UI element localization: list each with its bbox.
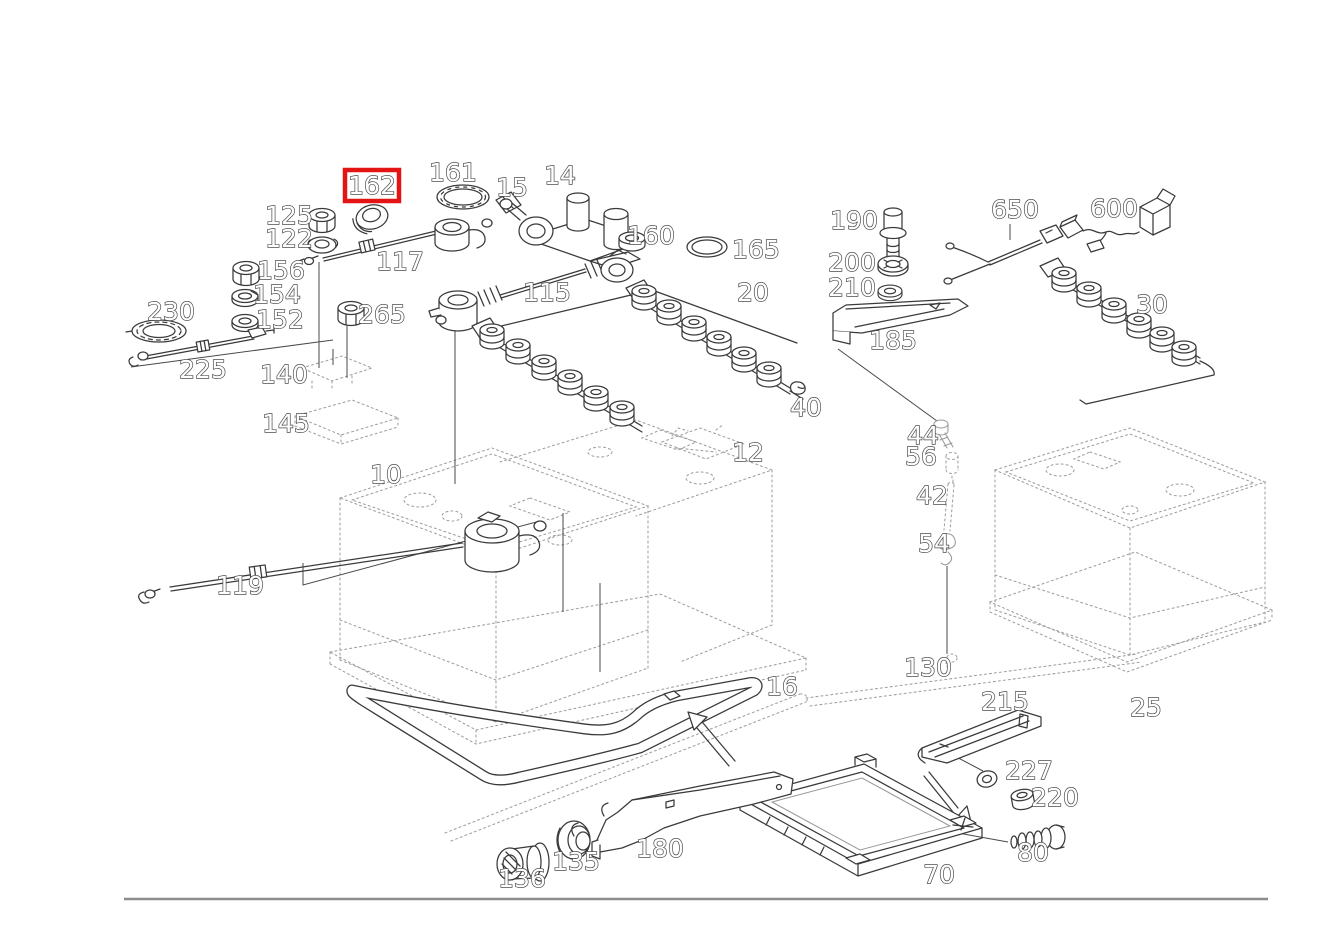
- part-label-165[interactable]: 165: [732, 235, 780, 264]
- part-label-15[interactable]: 15: [496, 173, 528, 202]
- part-label-162[interactable]: 162: [348, 171, 396, 200]
- part-label-14[interactable]: 14: [544, 161, 576, 190]
- part-label-225[interactable]: 225: [179, 355, 227, 384]
- part-label-185[interactable]: 185: [869, 326, 917, 355]
- part-30-vent-cap-strip: [1040, 258, 1214, 404]
- part-label-265[interactable]: 265: [358, 300, 406, 329]
- part-label-140[interactable]: 140: [260, 360, 308, 389]
- part-label-119[interactable]: 119: [216, 571, 264, 600]
- part-162-terminal-boot: [350, 201, 391, 236]
- part-190-bolt: [880, 208, 906, 263]
- part-label-25[interactable]: 25: [1130, 693, 1162, 722]
- part-label-16[interactable]: 16: [766, 672, 798, 701]
- part-label-30[interactable]: 30: [1136, 290, 1168, 319]
- part-label-215[interactable]: 215: [981, 687, 1029, 716]
- part-label-152[interactable]: 152: [256, 305, 304, 334]
- part-165-seal-ring: [687, 237, 727, 257]
- part-label-20[interactable]: 20: [737, 278, 769, 307]
- part-label-56[interactable]: 56: [905, 442, 937, 471]
- part-label-230[interactable]: 230: [147, 297, 195, 326]
- part-125-hex-nut: [309, 209, 335, 233]
- part-label-190[interactable]: 190: [830, 206, 878, 235]
- part-label-227[interactable]: 227: [1005, 756, 1053, 785]
- part-label-42[interactable]: 42: [916, 481, 948, 510]
- part-label-160[interactable]: 160: [627, 221, 675, 250]
- part-label-180[interactable]: 180: [636, 834, 684, 863]
- part-label-130[interactable]: 130: [904, 653, 952, 682]
- part-140-bracket: [302, 349, 372, 391]
- part-label-122[interactable]: 122: [265, 224, 313, 253]
- part-227-washer: [975, 769, 998, 790]
- part-14-terminal-assembly: [500, 193, 648, 268]
- part-210-washer: [878, 285, 902, 301]
- part-label-136[interactable]: 136: [498, 864, 546, 893]
- part-label-220[interactable]: 220: [1031, 783, 1079, 812]
- part-119-ground-cable: [139, 512, 546, 603]
- part-56-sleeve: [946, 453, 958, 483]
- part-label-117[interactable]: 117: [376, 247, 424, 276]
- part-label-600[interactable]: 600: [1090, 194, 1138, 223]
- part-200-contact-washer: [878, 256, 908, 276]
- part-16-seal: [352, 683, 757, 780]
- part-label-80[interactable]: 80: [1017, 838, 1049, 867]
- part-label-40[interactable]: 40: [790, 393, 822, 422]
- part-25-battery: [990, 428, 1272, 672]
- part-labels: 1621611514125122156154152230225117265115…: [147, 158, 1168, 893]
- part-label-210[interactable]: 210: [828, 273, 876, 302]
- part-label-54[interactable]: 54: [918, 529, 950, 558]
- part-label-161[interactable]: 161: [429, 158, 477, 187]
- diagram-canvas: 1621611514125122156154152230225117265115…: [0, 0, 1326, 950]
- part-label-10[interactable]: 10: [370, 460, 402, 489]
- part-label-12[interactable]: 12: [732, 438, 764, 467]
- part-label-650[interactable]: 650: [991, 195, 1039, 224]
- part-161-cover-cap: [437, 185, 489, 209]
- part-label-115[interactable]: 115: [523, 278, 571, 307]
- part-label-70[interactable]: 70: [923, 860, 955, 889]
- part-145-tray-insert: [295, 400, 398, 444]
- part-label-135[interactable]: 135: [552, 847, 600, 876]
- parts-diagram-page: 1621611514125122156154152230225117265115…: [0, 0, 1326, 950]
- part-label-145[interactable]: 145: [262, 409, 310, 438]
